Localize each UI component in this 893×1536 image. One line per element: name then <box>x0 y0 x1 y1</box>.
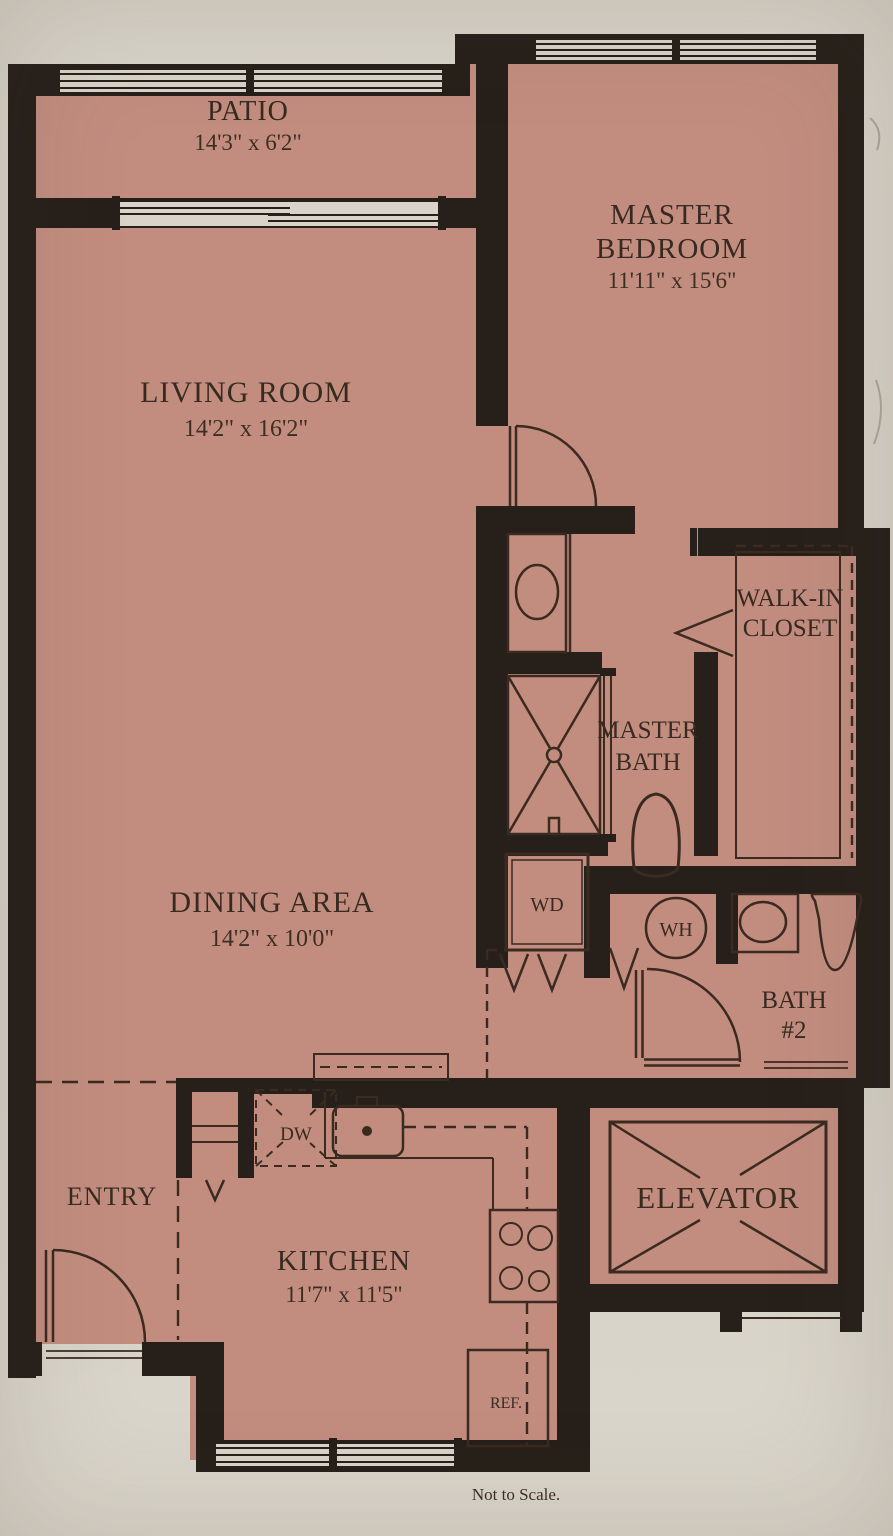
master-bedroom-label-2: BEDROOM <box>596 233 748 265</box>
water-heater-label: WH <box>659 919 692 941</box>
washer-dryer-label: WD <box>530 894 563 916</box>
master-bedroom-label-1: MASTER <box>610 199 734 231</box>
living-room-label: LIVING ROOM <box>140 376 352 409</box>
bath2-label-1: BATH <box>761 987 826 1014</box>
dishwasher-label: DW <box>280 1124 312 1145</box>
kitchen-label: KITCHEN <box>277 1245 411 1277</box>
living-room-dimensions: 14'2" x 16'2" <box>184 416 308 442</box>
floor-plan-page: PATIO 14'3" x 6'2" MASTER BEDROOM 11'11"… <box>0 0 893 1536</box>
floor-plan-drawing: PATIO 14'3" x 6'2" MASTER BEDROOM 11'11"… <box>0 0 893 1536</box>
dining-area-label: DINING AREA <box>169 886 374 919</box>
page-curl-marks <box>870 118 881 444</box>
dining-area-dimensions: 14'2" x 10'0" <box>210 926 334 952</box>
master-bedroom-dimensions: 11'11" x 15'6" <box>608 268 737 293</box>
walkin-closet-label-2: CLOSET <box>743 615 837 642</box>
walkin-closet-label-1: WALK-IN <box>737 585 844 612</box>
patio-label: PATIO <box>207 96 289 127</box>
elevator-label: ELEVATOR <box>636 1180 800 1215</box>
master-bath-label-2: BATH <box>615 749 680 776</box>
entry-label: ENTRY <box>67 1182 157 1211</box>
master-bath-label-1: MASTER <box>597 717 699 744</box>
patio-dimensions: 14'3" x 6'2" <box>194 130 302 155</box>
kitchen-dimensions: 11'7" x 11'5" <box>285 1282 402 1307</box>
refrigerator-label: REF. <box>490 1395 522 1412</box>
bath2-label-2: #2 <box>782 1017 807 1044</box>
footer-note: Not to Scale. <box>472 1485 560 1504</box>
